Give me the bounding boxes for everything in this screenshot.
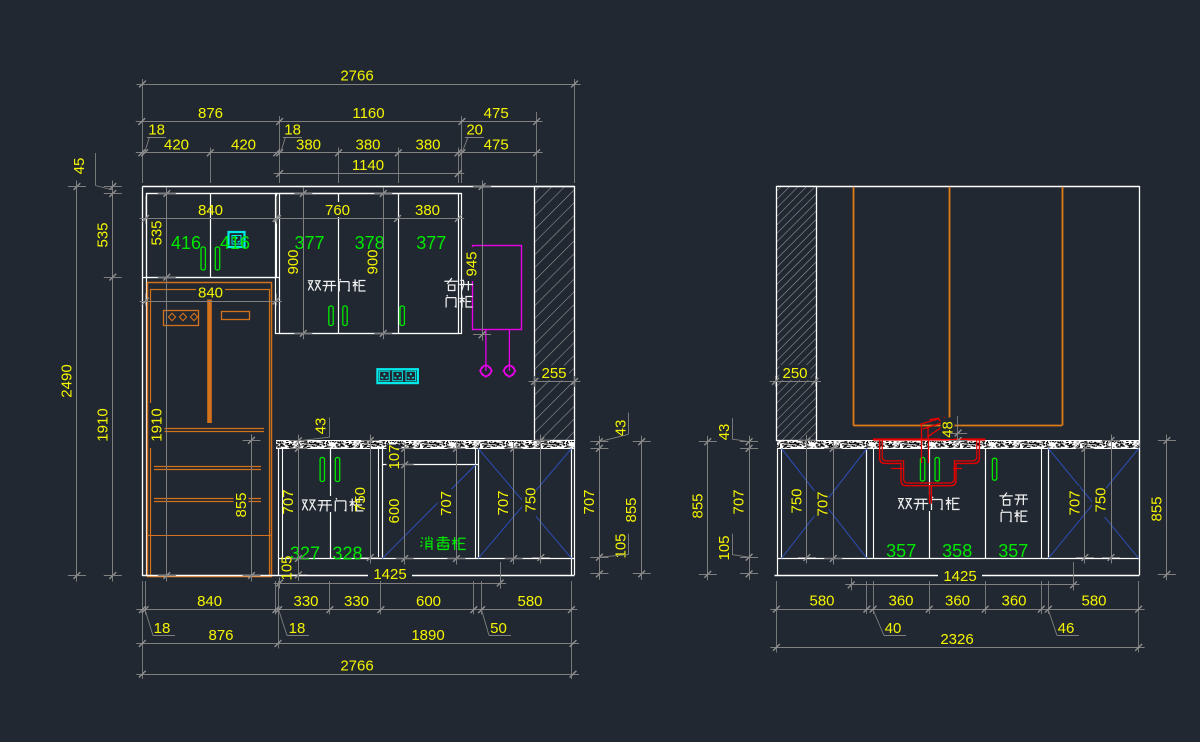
svg-text:1140: 1140: [352, 157, 384, 174]
svg-text:416: 416: [171, 233, 201, 253]
svg-text:600: 600: [416, 593, 441, 610]
svg-text:48: 48: [940, 421, 957, 438]
svg-text:330: 330: [293, 593, 318, 610]
svg-text:876: 876: [198, 105, 223, 122]
svg-text:945: 945: [464, 251, 481, 276]
svg-text:876: 876: [208, 627, 233, 644]
svg-text:18: 18: [148, 122, 165, 139]
svg-text:707: 707: [495, 490, 512, 515]
svg-text:358: 358: [942, 541, 972, 561]
svg-text:855: 855: [623, 497, 640, 522]
svg-text:475: 475: [484, 105, 509, 122]
svg-text:46: 46: [1058, 620, 1075, 637]
svg-text:707: 707: [438, 491, 455, 516]
svg-text:416: 416: [220, 233, 250, 253]
svg-text:760: 760: [325, 202, 350, 219]
svg-text:580: 580: [517, 593, 542, 610]
svg-text:380: 380: [415, 202, 440, 219]
svg-text:840: 840: [198, 285, 223, 302]
svg-text:2766: 2766: [340, 68, 373, 85]
svg-text:43: 43: [313, 418, 330, 435]
svg-text:360: 360: [945, 593, 970, 610]
svg-text:2326: 2326: [940, 631, 973, 648]
svg-text:707: 707: [280, 489, 297, 514]
svg-text:707: 707: [815, 491, 832, 516]
svg-text:600: 600: [386, 498, 403, 523]
svg-text:750: 750: [522, 487, 539, 512]
svg-text:45: 45: [71, 158, 88, 175]
svg-text:475: 475: [484, 136, 509, 153]
svg-text:750: 750: [1093, 487, 1110, 512]
svg-text:43: 43: [716, 424, 733, 441]
svg-text:580: 580: [1081, 593, 1106, 610]
svg-text:707: 707: [581, 489, 598, 514]
svg-text:855: 855: [1148, 496, 1165, 521]
svg-text:357: 357: [886, 541, 916, 561]
svg-text:420: 420: [164, 136, 189, 153]
svg-text:105: 105: [716, 535, 733, 560]
svg-text:18: 18: [289, 620, 306, 637]
svg-text:360: 360: [888, 593, 913, 610]
svg-text:20: 20: [466, 122, 483, 139]
svg-text:1160: 1160: [352, 105, 384, 122]
svg-text:750: 750: [352, 487, 369, 512]
svg-text:855: 855: [233, 492, 250, 517]
svg-text:420: 420: [231, 136, 256, 153]
svg-text:840: 840: [198, 202, 223, 219]
svg-text:40: 40: [885, 620, 902, 637]
svg-text:18: 18: [284, 122, 301, 139]
svg-text:1910: 1910: [94, 408, 111, 441]
svg-text:900: 900: [285, 249, 302, 274]
svg-text:250: 250: [782, 365, 807, 382]
svg-text:107: 107: [386, 444, 403, 469]
svg-text:330: 330: [344, 593, 369, 610]
svg-text:1425: 1425: [943, 568, 976, 585]
svg-text:18: 18: [154, 620, 171, 637]
svg-text:380: 380: [355, 136, 380, 153]
svg-text:1910: 1910: [148, 408, 165, 441]
svg-text:377: 377: [416, 233, 446, 253]
svg-text:360: 360: [1001, 593, 1026, 610]
svg-text:535: 535: [94, 222, 111, 247]
svg-text:2766: 2766: [340, 658, 373, 675]
svg-text:535: 535: [148, 220, 165, 245]
svg-text:1425: 1425: [373, 566, 406, 583]
svg-text:2490: 2490: [58, 364, 75, 397]
svg-text:380: 380: [296, 136, 321, 153]
svg-text:707: 707: [1066, 490, 1083, 515]
svg-text:328: 328: [332, 544, 362, 564]
svg-text:840: 840: [197, 593, 222, 610]
svg-text:580: 580: [809, 593, 834, 610]
svg-text:1890: 1890: [411, 627, 444, 644]
svg-text:707: 707: [731, 489, 748, 514]
svg-text:380: 380: [415, 136, 440, 153]
svg-text:900: 900: [365, 249, 382, 274]
svg-text:50: 50: [490, 620, 507, 637]
svg-text:43: 43: [613, 420, 630, 437]
svg-text:750: 750: [788, 488, 805, 513]
svg-text:357: 357: [998, 541, 1028, 561]
svg-text:105: 105: [279, 555, 296, 580]
svg-text:255: 255: [541, 365, 566, 382]
svg-text:855: 855: [689, 493, 706, 518]
